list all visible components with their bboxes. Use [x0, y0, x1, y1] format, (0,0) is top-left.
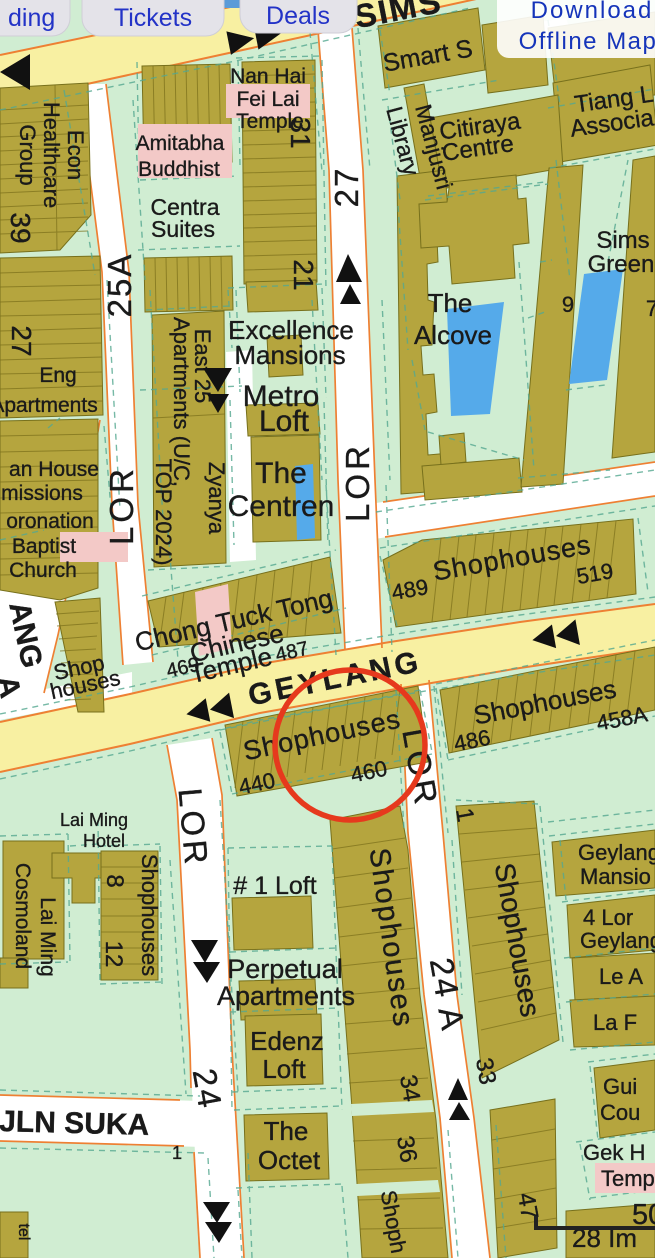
svg-text:Green: Green: [588, 251, 655, 278]
svg-text:# 1 Loft: # 1 Loft: [233, 872, 316, 900]
svg-text:Sims: Sims: [596, 227, 649, 254]
svg-text:Tickets: Tickets: [114, 4, 192, 32]
svg-text:24: 24: [186, 1066, 230, 1113]
svg-text:LOR: LOR: [172, 787, 216, 870]
svg-text:Buddhist: Buddhist: [138, 158, 220, 181]
svg-text:The: The: [255, 457, 307, 490]
svg-text:Temp: Temp: [601, 1166, 655, 1191]
svg-text:Shophouses: Shophouses: [137, 854, 162, 976]
svg-text:12: 12: [100, 941, 127, 968]
svg-text:Eng: Eng: [39, 364, 76, 387]
svg-text:Gui: Gui: [603, 1074, 637, 1099]
svg-text:Baptist: Baptist: [12, 535, 76, 558]
svg-text:Mansions: Mansions: [234, 340, 345, 370]
svg-text:Gek H: Gek H: [583, 1140, 645, 1165]
svg-text:Loft: Loft: [259, 405, 310, 438]
svg-text:27: 27: [328, 167, 365, 208]
svg-text:27: 27: [6, 325, 37, 356]
svg-text:an House: an House: [9, 458, 99, 481]
svg-text:Amitabha: Amitabha: [136, 132, 225, 155]
svg-text:36: 36: [391, 1134, 422, 1165]
svg-text:Deals: Deals: [266, 2, 330, 30]
svg-text:Geylang: Geylang: [578, 840, 655, 865]
svg-text:4 Lor: 4 Lor: [583, 905, 633, 930]
svg-text:ding: ding: [8, 4, 55, 32]
svg-text:34: 34: [394, 1073, 425, 1104]
svg-text:TOP 2024): TOP 2024): [151, 459, 176, 566]
svg-text:Church: Church: [9, 559, 77, 582]
svg-text:21: 21: [288, 259, 319, 290]
svg-text:missions: missions: [1, 482, 83, 505]
svg-text:47: 47: [512, 1191, 543, 1222]
svg-text:Cou: Cou: [600, 1100, 640, 1125]
svg-text:Loft: Loft: [262, 1054, 306, 1084]
svg-text:Offline Map: Offline Map: [519, 28, 655, 55]
svg-text:7: 7: [646, 296, 655, 321]
svg-text:Octet: Octet: [258, 1145, 321, 1175]
svg-text:33: 33: [470, 1056, 501, 1087]
svg-text:Geylang: Geylang: [580, 928, 655, 953]
svg-text:Fei Lai: Fei Lai: [236, 88, 299, 111]
svg-text:8: 8: [101, 874, 128, 887]
svg-text:La F: La F: [593, 1010, 637, 1035]
svg-text:Suites: Suites: [151, 216, 215, 242]
svg-text:oronation: oronation: [6, 510, 94, 533]
svg-text:LOR: LOR: [339, 442, 376, 522]
svg-text:25A: 25A: [101, 253, 138, 318]
svg-text:The: The: [264, 1116, 309, 1146]
svg-text:The: The: [428, 288, 473, 318]
svg-text:Lai Ming: Lai Ming: [36, 897, 59, 976]
svg-text:JLN SUKA: JLN SUKA: [0, 1105, 150, 1142]
svg-text:39: 39: [5, 212, 36, 243]
svg-text:Centren: Centren: [228, 490, 335, 523]
svg-text:Apartments: Apartments: [217, 981, 355, 1011]
svg-text:Nan Hai: Nan Hai: [230, 65, 306, 88]
svg-text:Zyanya: Zyanya: [204, 462, 229, 535]
svg-text:Hotel: Hotel: [83, 831, 125, 851]
svg-text:Group: Group: [15, 124, 40, 185]
svg-text:Perpetual: Perpetual: [227, 954, 343, 984]
svg-text:Le A: Le A: [599, 964, 643, 989]
svg-text:Edenz: Edenz: [250, 1026, 324, 1056]
svg-text:Mansio: Mansio: [580, 864, 651, 889]
svg-text:Healthcare: Healthcare: [39, 102, 64, 208]
svg-text:Econ: Econ: [63, 130, 88, 180]
svg-text:Apartments: Apartments: [0, 394, 98, 417]
svg-text:Lai Ming: Lai Ming: [60, 810, 128, 830]
svg-text:Download: Download: [531, 0, 654, 24]
svg-text:Cosmoland: Cosmoland: [11, 863, 34, 969]
svg-text:tel: tel: [15, 1224, 32, 1241]
svg-text:LOR: LOR: [103, 465, 140, 545]
svg-text:1: 1: [172, 1143, 182, 1163]
svg-text:9: 9: [562, 292, 574, 317]
svg-text:31: 31: [285, 117, 316, 148]
svg-text:Alcove: Alcove: [414, 320, 492, 350]
